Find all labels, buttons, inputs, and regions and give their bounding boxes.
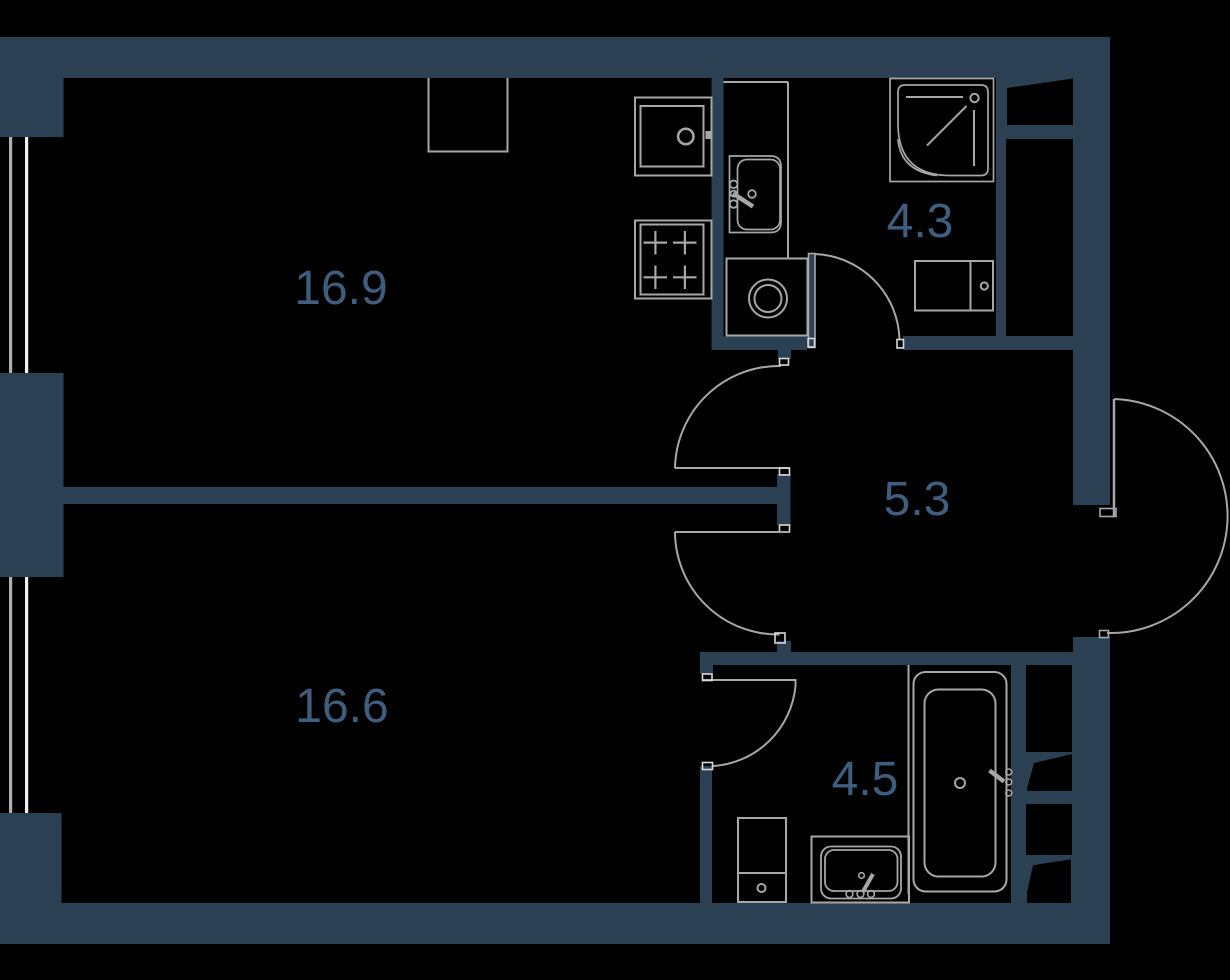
svg-text:16.6: 16.6	[295, 680, 388, 733]
svg-text:4.5: 4.5	[832, 753, 899, 806]
svg-text:5.3: 5.3	[884, 473, 951, 526]
svg-text:4.3: 4.3	[887, 195, 954, 248]
svg-text:16.9: 16.9	[294, 262, 387, 315]
